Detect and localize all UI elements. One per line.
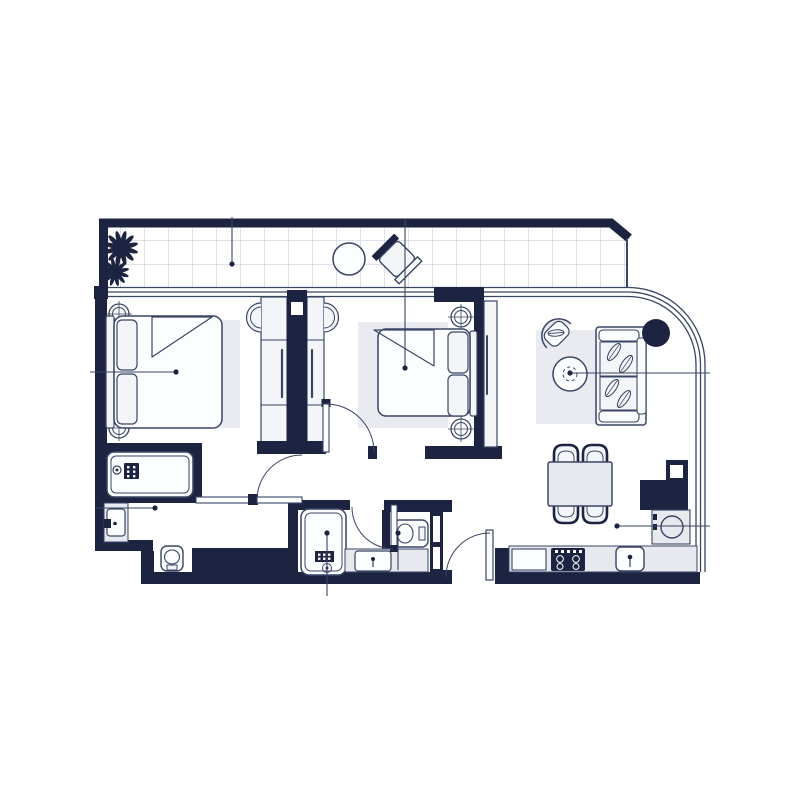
wardrobe-bottom-wall bbox=[257, 441, 326, 454]
bathroom2 bbox=[301, 509, 428, 575]
bedroom1 bbox=[106, 301, 222, 441]
vanity-sink-1 bbox=[104, 503, 128, 542]
bathtub bbox=[107, 452, 193, 497]
door-hall bbox=[257, 455, 302, 503]
bed1-pillow bbox=[117, 374, 137, 424]
appliance bbox=[652, 510, 690, 544]
balcony bbox=[98, 219, 629, 289]
sofa-armrest bbox=[599, 330, 639, 341]
structural-column bbox=[642, 319, 670, 347]
tub-controls bbox=[124, 463, 139, 479]
duct-notch bbox=[670, 465, 683, 478]
door-entry bbox=[446, 530, 493, 580]
door-leaf bbox=[323, 404, 329, 452]
bed2-headboard bbox=[470, 331, 477, 416]
door-leaf bbox=[486, 530, 493, 580]
glass-partition bbox=[196, 497, 251, 503]
bedside-lamp-icon bbox=[448, 416, 474, 442]
balcony-round-table bbox=[333, 243, 365, 275]
wardrobe-right-panel bbox=[307, 297, 324, 442]
bedside-lamp-icon bbox=[448, 304, 474, 330]
sofa bbox=[596, 327, 646, 425]
wall-bathroom2-left bbox=[288, 500, 298, 584]
bed2-pillow bbox=[448, 375, 468, 416]
sofa-armrest bbox=[599, 411, 639, 422]
kitchen-sink bbox=[616, 547, 644, 571]
wardrobe-center-niche bbox=[291, 302, 303, 315]
sliding-panel bbox=[484, 301, 497, 447]
floor-plan-page bbox=[0, 0, 800, 800]
wall-entry-jamb bbox=[443, 570, 452, 584]
sofa-backrest bbox=[637, 338, 646, 414]
door-leaf bbox=[391, 505, 397, 549]
vanity-sink-2 bbox=[345, 549, 428, 572]
bed1-pillow bbox=[117, 320, 137, 370]
niche-shelf bbox=[433, 547, 440, 569]
toilet-1 bbox=[161, 546, 183, 571]
shower-controls bbox=[315, 551, 334, 562]
kitchen-cabinet bbox=[512, 549, 546, 570]
door-leaf bbox=[257, 497, 302, 503]
niche-shelf bbox=[433, 516, 440, 542]
wall-bottom-right bbox=[495, 572, 700, 584]
wall-bedroom2-bottom bbox=[425, 446, 502, 459]
bed2-pillow bbox=[448, 332, 468, 373]
wall-bottom-slab bbox=[192, 548, 298, 584]
wall-door-jamb-bedroom2 bbox=[368, 446, 377, 459]
stove bbox=[551, 548, 585, 571]
dining-set bbox=[548, 445, 612, 523]
shower bbox=[301, 509, 346, 575]
floor-plan-svg bbox=[0, 0, 800, 800]
dining-table bbox=[548, 462, 612, 506]
door-bathroom2 bbox=[352, 505, 398, 552]
